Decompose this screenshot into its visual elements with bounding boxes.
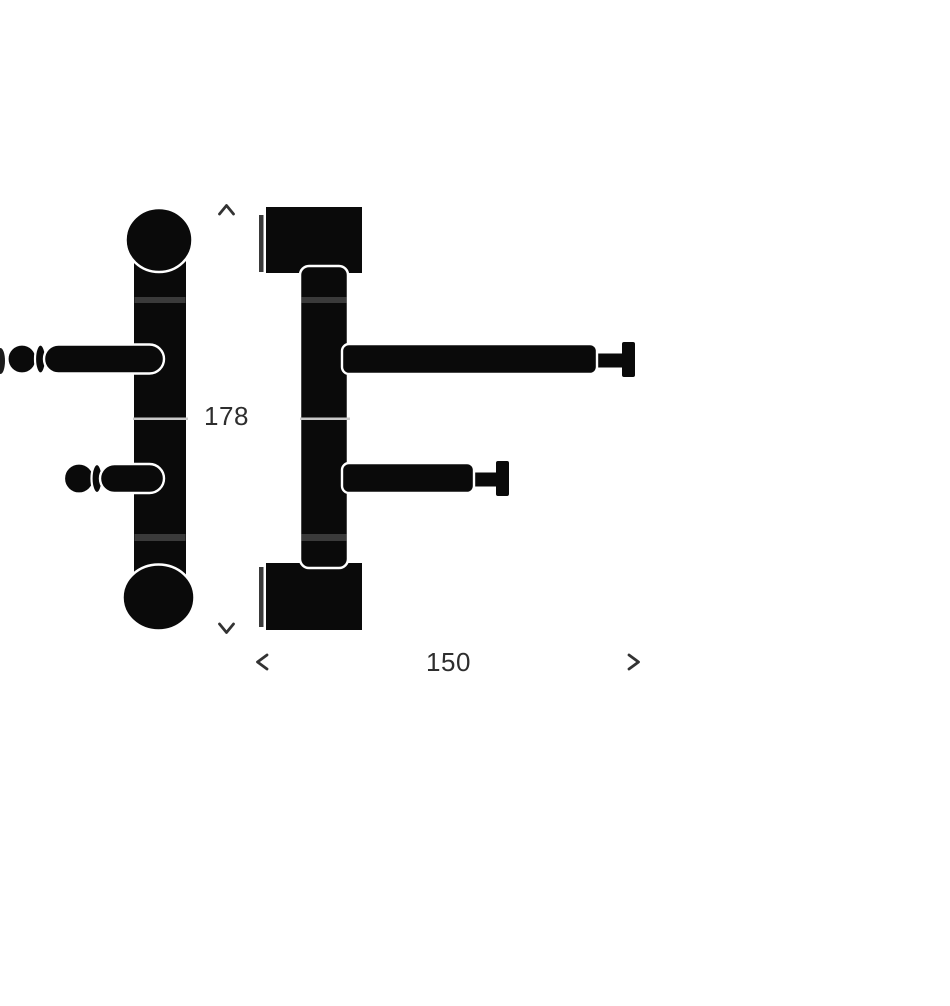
upper-hook-neck: [594, 354, 624, 368]
front-view-post: [300, 266, 348, 568]
bottom-mount-block: [266, 563, 362, 630]
width-dimension: 150: [258, 647, 639, 677]
upper-hook-shaft: [342, 344, 597, 374]
bottom-mount-edge-line: [259, 567, 264, 627]
front-view-upper-arm: [342, 342, 635, 377]
side-view-lower-arm: [64, 464, 164, 494]
lower-arm-shaft: [100, 464, 164, 493]
upper-hook-end-cap: [622, 342, 635, 377]
side-view-post-seam: [133, 418, 188, 421]
front-view-post-band-top: [302, 297, 347, 303]
upper-arm-shaft: [44, 345, 164, 374]
drawing-canvas: 178 150: [0, 0, 950, 1006]
top-mount-edge-line: [259, 215, 264, 272]
side-view-post-band-top: [135, 297, 186, 303]
top-mount-block: [266, 207, 362, 273]
side-view-upper-arm: [0, 345, 164, 375]
height-dimension: 178: [204, 206, 249, 633]
side-view-bottom-knob: [123, 565, 195, 631]
front-view-post-seam: [300, 418, 350, 421]
side-view-post-band-bottom: [135, 534, 186, 541]
lower-hook-shaft: [342, 463, 474, 493]
arrow-right-icon: [629, 655, 639, 669]
technical-drawing-svg: 178 150: [0, 0, 950, 1006]
lower-hook-end-cap: [496, 461, 509, 496]
side-view-top-knob: [126, 208, 193, 272]
upper-arm-edge-sliver: [0, 348, 5, 374]
height-dimension-label: 178: [204, 401, 249, 431]
front-view-lower-arm: [342, 461, 509, 496]
upper-arm-ball-tip: [8, 345, 37, 374]
front-view-post-band-bottom: [302, 534, 347, 541]
arrow-left-icon: [258, 655, 268, 669]
side-view: [0, 208, 195, 631]
arrow-up-icon: [220, 206, 234, 215]
arrow-down-icon: [220, 624, 234, 633]
lower-arm-ball-tip: [64, 464, 94, 494]
width-dimension-label: 150: [426, 647, 471, 677]
front-view: [259, 207, 635, 630]
